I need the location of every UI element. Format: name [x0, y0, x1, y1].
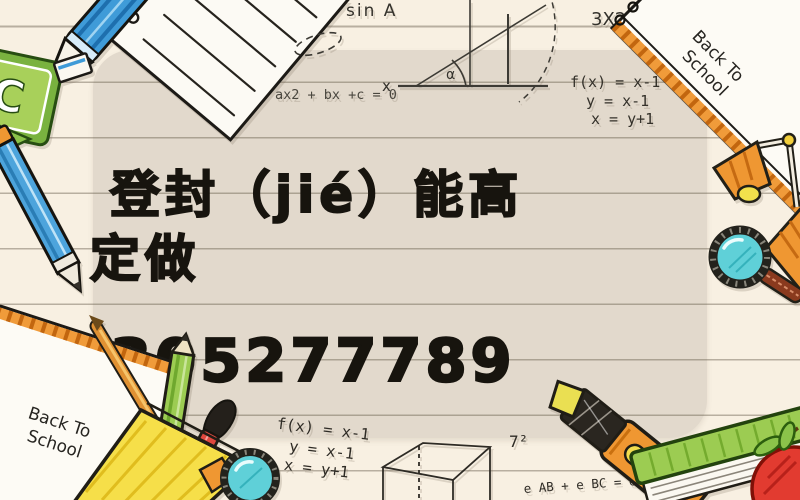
teal-lens-icon	[224, 452, 276, 500]
doodle-foreground: Back To School	[0, 0, 800, 500]
ad-poster: C sin A α x ax2	[0, 0, 800, 500]
